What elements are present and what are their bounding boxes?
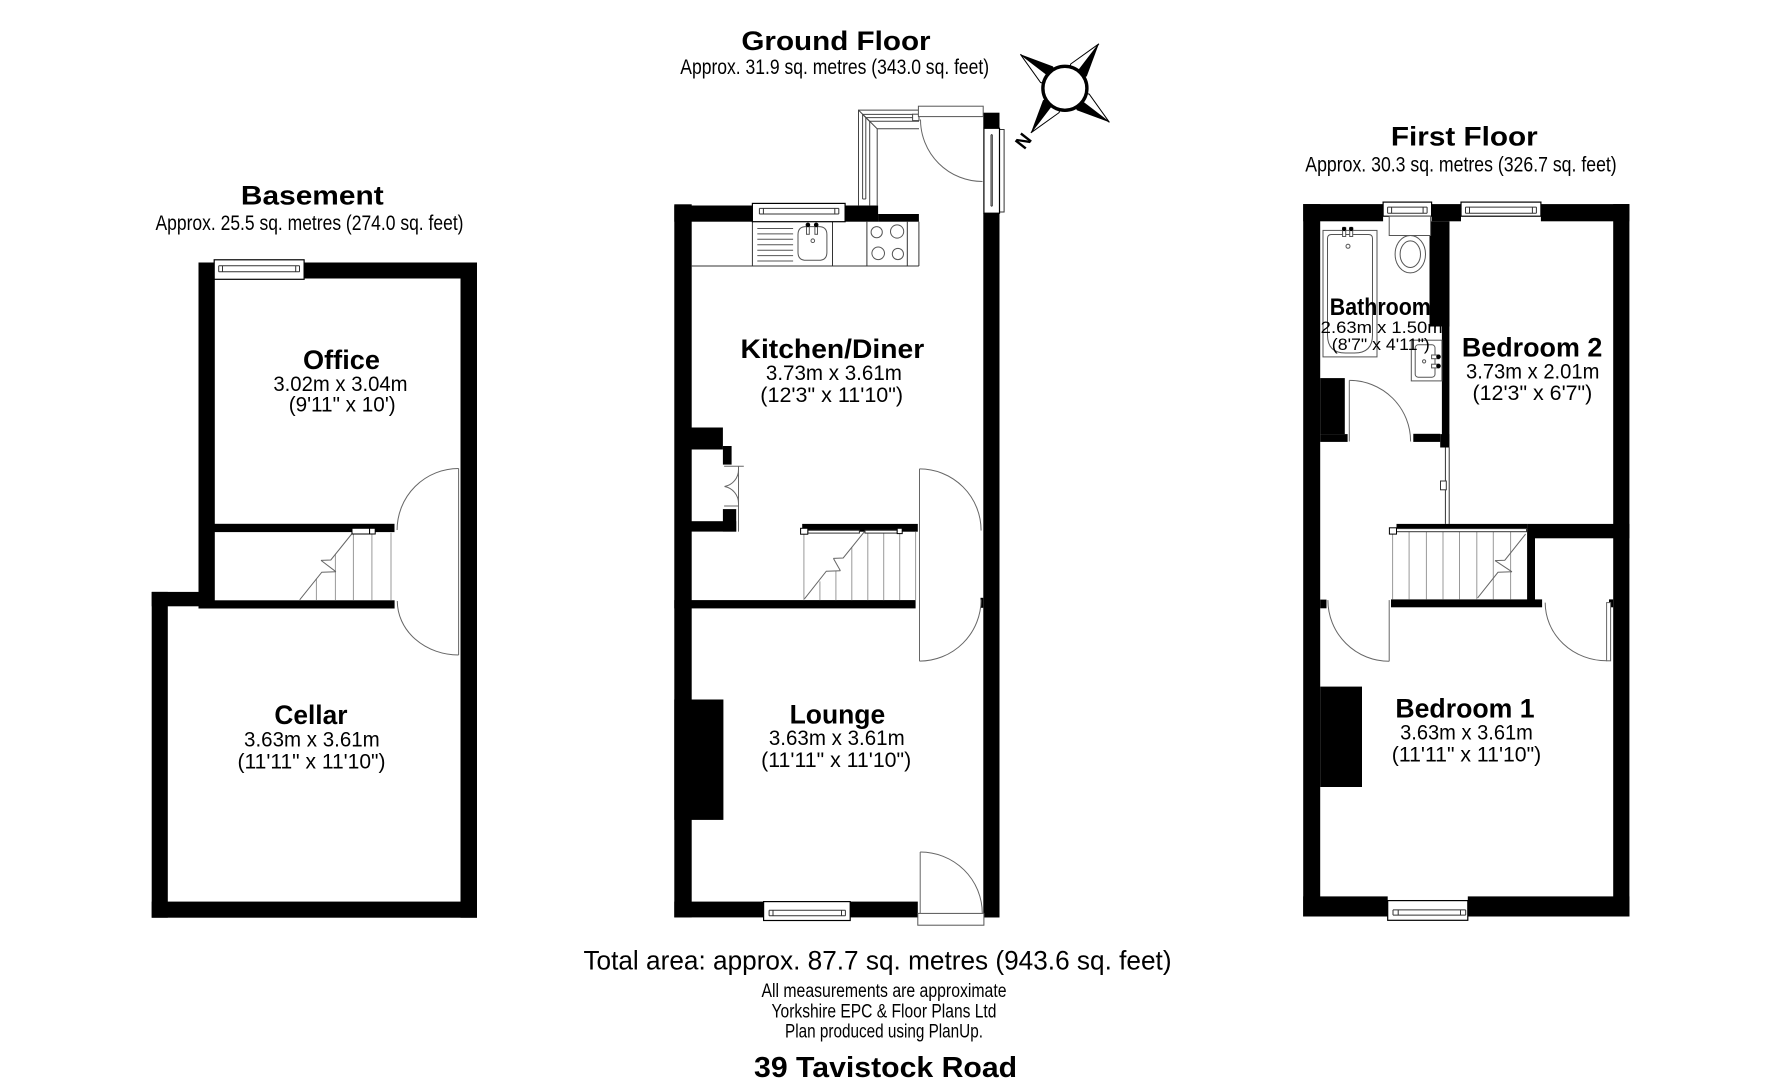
svg-text:(12'3" x 6'7"): (12'3" x 6'7") xyxy=(1473,382,1593,405)
svg-text:All measurements are approxima: All measurements are approximate xyxy=(761,981,1006,1002)
svg-text:(11'11" x 11'10"): (11'11" x 11'10") xyxy=(1392,744,1541,767)
svg-text:Approx. 31.9 sq. metres (343.0: Approx. 31.9 sq. metres (343.0 sq. feet) xyxy=(680,56,989,79)
svg-text:(9'11" x 10'): (9'11" x 10') xyxy=(289,394,396,417)
svg-text:Kitchen/Diner: Kitchen/Diner xyxy=(741,334,925,364)
svg-text:3.63m x 3.61m: 3.63m x 3.61m xyxy=(244,728,380,751)
svg-text:Lounge: Lounge xyxy=(790,699,886,729)
svg-text:Basement: Basement xyxy=(241,181,384,211)
svg-text:Approx. 25.5 sq. metres (274.0: Approx. 25.5 sq. metres (274.0 sq. feet) xyxy=(156,212,464,235)
svg-text:Bedroom 2: Bedroom 2 xyxy=(1462,333,1603,363)
svg-text:Ground Floor: Ground Floor xyxy=(741,26,931,56)
svg-text:3.02m x 3.04m: 3.02m x 3.04m xyxy=(273,373,407,396)
svg-text:Plan produced using PlanUp.: Plan produced using PlanUp. xyxy=(785,1022,983,1043)
svg-text:Total area: approx. 87.7 sq. m: Total area: approx. 87.7 sq. metres (943… xyxy=(583,945,1171,975)
svg-text:(12'3" x 11'10"): (12'3" x 11'10") xyxy=(760,384,903,407)
svg-text:3.73m x 3.61m: 3.73m x 3.61m xyxy=(766,362,902,385)
svg-text:Cellar: Cellar xyxy=(274,700,348,730)
svg-text:Bedroom 1: Bedroom 1 xyxy=(1395,693,1534,723)
svg-text:First Floor: First Floor xyxy=(1391,122,1538,152)
svg-text:3.63m x 3.61m: 3.63m x 3.61m xyxy=(769,727,905,750)
svg-text:3.73m x 2.01m: 3.73m x 2.01m xyxy=(1466,360,1599,383)
svg-text:Office: Office xyxy=(303,345,380,375)
svg-text:3.63m x 3.61m: 3.63m x 3.61m xyxy=(1400,722,1533,745)
svg-text:(11'11" x 11'10"): (11'11" x 11'10") xyxy=(761,749,911,772)
svg-text:Approx. 30.3 sq. metres (326.7: Approx. 30.3 sq. metres (326.7 sq. feet) xyxy=(1305,154,1616,177)
svg-text:(8'7" x 4'11"): (8'7" x 4'11") xyxy=(1332,335,1430,354)
svg-text:Yorkshire EPC & Floor Plans L: Yorkshire EPC & Floor Plans Ltd xyxy=(772,1001,997,1022)
svg-text:39 Tavistock Road: 39 Tavistock Road xyxy=(754,1052,1017,1080)
svg-text:(11'11" x 11'10"): (11'11" x 11'10") xyxy=(238,751,386,774)
